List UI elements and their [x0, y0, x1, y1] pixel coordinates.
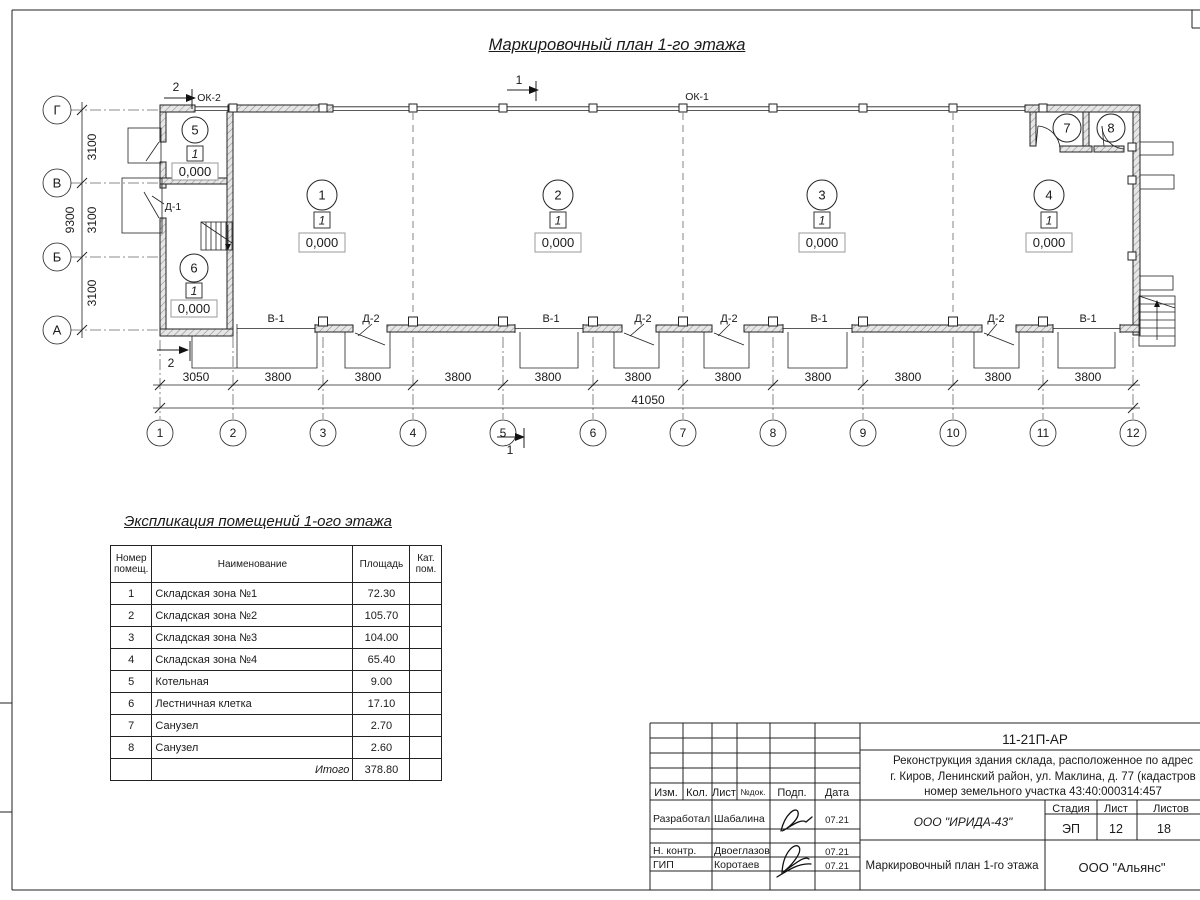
room-area: 2.70: [353, 715, 410, 737]
section-mark-label: 2: [173, 80, 180, 94]
room-num: 8: [111, 737, 152, 759]
table-total-row: Итого 378.80: [111, 759, 442, 781]
sheet-count: 18: [1157, 822, 1171, 836]
h-dim-label: 3800: [1075, 370, 1102, 384]
h-dim-label: 3800: [805, 370, 832, 384]
room-area: 9.00: [353, 671, 410, 693]
room-category: 1: [1046, 214, 1053, 228]
table-header-row: Номер помещ. Наименование Площадь Кат. п…: [111, 546, 442, 583]
room-number: 5: [191, 123, 198, 138]
room-category: 1: [191, 284, 198, 298]
room-category: 1: [319, 214, 326, 228]
table-row: 2 Складская зона №2 105.70: [111, 605, 442, 627]
signer-role: ГИП: [653, 859, 674, 871]
axis-number: 5: [500, 426, 507, 440]
axis-number: 1: [157, 426, 164, 440]
signer-role: Н. контр.: [653, 845, 696, 857]
room-number: 7: [1063, 121, 1070, 136]
room-area: 2.60: [353, 737, 410, 759]
signer-name: Коротаев: [714, 859, 760, 871]
window-label: ОК-1: [685, 91, 709, 103]
axis-letter: А: [53, 323, 62, 338]
room-number: 2: [554, 188, 561, 203]
opening-labels: ОК-2 ОК-1 Д-1 В-1 Д-2 В-1 Д-2 Д-2 В-1 Д-…: [165, 91, 1097, 325]
v-dim-total: 9300: [63, 206, 77, 233]
gate-label: В-1: [1079, 313, 1096, 325]
v-dim-label: 3100: [85, 279, 99, 306]
axis-number: 10: [946, 426, 960, 440]
room-elevation: 0,000: [806, 235, 839, 250]
room-cat: [410, 627, 442, 649]
section-mark-label: 1: [507, 443, 514, 457]
client-org: ООО "Альянс": [1079, 860, 1166, 875]
axis-number: 9: [860, 426, 867, 440]
axis-number: 3: [320, 426, 327, 440]
col-header-number: Номер помещ.: [111, 546, 152, 583]
room-cat: [410, 737, 442, 759]
axis-letter: Г: [53, 103, 60, 118]
room-number: 8: [1107, 121, 1114, 136]
door-label: Д-2: [987, 313, 1004, 325]
table-row: 8 Санузел 2.60: [111, 737, 442, 759]
room-area: 105.70: [353, 605, 410, 627]
axis-markers-bottom: 1 2 3 4 5 6 7 8 9 10 11 12: [147, 420, 1146, 446]
stamp-col-ndok: №док.: [741, 787, 766, 797]
room-elevation: 0,000: [1033, 235, 1066, 250]
dimension-chain-vertical: 3100 3100 3100 9300: [63, 102, 99, 338]
drawing-sheet: 3100 3100 3100 9300 3050 3800 3800 3800 …: [0, 0, 1200, 900]
table-row: 6 Лестничная клетка 17.10: [111, 693, 442, 715]
room-area: 104.00: [353, 627, 410, 649]
room-elevation: 0,000: [179, 164, 212, 179]
col-header-area: Площадь: [353, 546, 410, 583]
stamp-col-data: Дата: [825, 787, 850, 799]
room-category: 1: [192, 147, 199, 161]
table-row: 7 Санузел 2.70: [111, 715, 442, 737]
door-label: Д-2: [720, 313, 737, 325]
table-row: 4 Складская зона №4 65.40: [111, 649, 442, 671]
room-num: 3: [111, 627, 152, 649]
room-num: 6: [111, 693, 152, 715]
total-value: 378.80: [353, 759, 410, 781]
room-cat: [410, 715, 442, 737]
room-category: 1: [555, 214, 562, 228]
stamp-col-izm: Изм.: [654, 787, 678, 799]
axis-letter: В: [53, 176, 62, 191]
room-number: 1: [318, 188, 325, 203]
axis-number: 7: [680, 426, 687, 440]
walls: [160, 105, 1140, 336]
project-line-2: г. Киров, Ленинский район, ул. Маклина, …: [890, 771, 1196, 783]
axis-number: 11: [1037, 426, 1050, 440]
h-dim-label: 3800: [535, 370, 562, 384]
room-cat: [410, 605, 442, 627]
room-elevation: 0,000: [178, 301, 211, 316]
title-block: Изм. Кол. Лист №док. Подп. Дата Разработ…: [650, 723, 1200, 890]
room-elevation: 0,000: [542, 235, 575, 250]
h-dim-label: 3800: [625, 370, 652, 384]
sheet-label: Лист: [1104, 803, 1128, 815]
room-cat: [410, 649, 442, 671]
room-name: Котельная: [152, 671, 353, 693]
section-marks: 2 1 2 1: [157, 73, 539, 457]
dimension-chain-horizontal: 3050 3800 3800 3800 3800 3800 3800 3800 …: [153, 370, 1140, 413]
total-label: Итого: [152, 759, 353, 781]
doc-number: 11-21П-АР: [1002, 732, 1068, 747]
axis-letter: Б: [53, 250, 62, 265]
stamp-col-podp: Подп.: [777, 787, 806, 799]
h-dim-label: 3800: [445, 370, 472, 384]
h-dim-label: 3800: [895, 370, 922, 384]
signer-role: Разработал: [653, 813, 710, 825]
room-markers: 1 1 0,000 2 1 0,000 3 1 0,000 4 1 0,000 …: [171, 114, 1125, 317]
zone-divider-lines: [413, 113, 953, 324]
room-num: 4: [111, 649, 152, 671]
room-elevation: 0,000: [306, 235, 339, 250]
room-cat: [410, 583, 442, 605]
room-name: Складская зона №4: [152, 649, 353, 671]
explication-table: Номер помещ. Наименование Площадь Кат. п…: [110, 545, 442, 781]
gate-label: В-1: [267, 313, 284, 325]
room-num: 7: [111, 715, 152, 737]
signature-scribble: [777, 846, 811, 877]
axis-number: 8: [770, 426, 777, 440]
h-dim-label: 3800: [355, 370, 382, 384]
room-area: 17.10: [353, 693, 410, 715]
table-row: 3 Складская зона №3 104.00: [111, 627, 442, 649]
room-name: Санузел: [152, 737, 353, 759]
drawing-title: Маркировочный план 1-го этажа: [866, 860, 1040, 872]
table-row: 1 Складская зона №1 72.30: [111, 583, 442, 605]
col-header-category: Кат. пом.: [410, 546, 442, 583]
room-area: 65.40: [353, 649, 410, 671]
room-name: Складская зона №2: [152, 605, 353, 627]
door-label: Д-1: [165, 201, 182, 213]
signer-name: Двоеглазов: [714, 845, 770, 857]
stamp-col-kol: Кол.: [686, 787, 708, 799]
h-dim-total: 41050: [631, 393, 665, 407]
stamp-col-list: Лист: [712, 787, 736, 799]
sheet-number: 12: [1109, 822, 1123, 836]
signer-date: 07.21: [825, 815, 849, 826]
room-name: Лестничная клетка: [152, 693, 353, 715]
h-dim-label: 3800: [985, 370, 1012, 384]
signer-date: 07.21: [825, 847, 849, 858]
h-dim-label: 3050: [183, 370, 210, 384]
room-cat: [410, 693, 442, 715]
signer-date: 07.21: [825, 861, 849, 872]
room-number: 4: [1045, 188, 1052, 203]
window-label: ОК-2: [197, 92, 221, 104]
table-row: 5 Котельная 9.00: [111, 671, 442, 693]
h-dim-label: 3800: [715, 370, 742, 384]
room-name: Складская зона №3: [152, 627, 353, 649]
signature-scribble: [781, 810, 812, 831]
col-header-name: Наименование: [152, 546, 353, 583]
v-dim-label: 3100: [85, 206, 99, 233]
gate-label: В-1: [542, 313, 559, 325]
signer-name: Шабалина: [714, 813, 765, 825]
room-num: 1: [111, 583, 152, 605]
axis-number: 2: [230, 426, 237, 440]
stage-value: ЭП: [1062, 822, 1080, 836]
room-cat: [410, 671, 442, 693]
axis-number: 4: [410, 426, 417, 440]
gate-label: В-1: [810, 313, 827, 325]
project-line-3: номер земельного участка 43:40:000314:45…: [924, 786, 1162, 798]
door-label: Д-2: [362, 313, 379, 325]
section-mark-label: 2: [168, 356, 175, 370]
axis-number: 6: [590, 426, 597, 440]
page-title: Маркировочный план 1-го этажа: [452, 36, 782, 55]
room-number: 3: [818, 188, 825, 203]
exterior-stair: [1139, 296, 1175, 346]
room-name: Санузел: [152, 715, 353, 737]
room-area: 72.30: [353, 583, 410, 605]
column-marks: [229, 104, 1136, 326]
room-name: Складская зона №1: [152, 583, 353, 605]
sheets-label: Листов: [1153, 803, 1189, 815]
design-company: ООО "ИРИДА-43": [914, 815, 1014, 829]
stage-label: Стадия: [1052, 803, 1090, 815]
axis-number: 12: [1126, 426, 1140, 440]
room-category: 1: [819, 214, 826, 228]
room-number: 6: [190, 261, 197, 276]
project-line-1: Реконструкция здания склада, расположенн…: [893, 755, 1193, 767]
explication-title: Экспликация помещений 1-ого этажа: [124, 513, 392, 530]
room-num: 5: [111, 671, 152, 693]
v-dim-label: 3100: [85, 133, 99, 160]
h-dim-label: 3800: [265, 370, 292, 384]
section-mark-label: 1: [516, 73, 523, 87]
door-label: Д-2: [634, 313, 651, 325]
room-num: 2: [111, 605, 152, 627]
